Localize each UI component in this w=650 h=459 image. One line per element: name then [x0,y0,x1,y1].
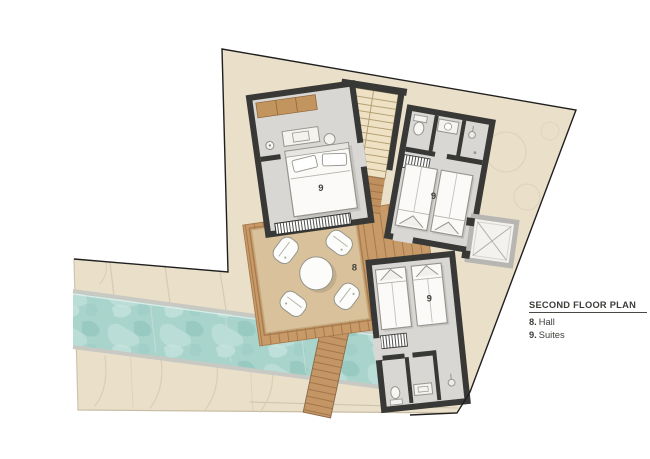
wall-stub [461,250,470,259]
legend-item-hall: 8.Hall [529,316,647,329]
toilet-tank [390,399,402,405]
lightwell [461,215,517,266]
wall-stub [466,217,475,226]
suite-top-left: 9 [249,83,374,236]
vanity [414,383,433,396]
suite-number-label: 9 [431,191,436,202]
hall-number-label: 8 [352,262,357,273]
legend-item-label: Suites [539,330,565,340]
legend-item-suites: 9.Suites [529,329,647,342]
suite-number-label: 9 [318,183,323,194]
floor-plan-canvas: 8 [0,0,650,459]
shower-head [468,131,476,139]
suite-number-label: 9 [427,293,432,304]
legend-title: SECOND FLOOR PLAN [529,300,647,313]
suite-bottom-right: 9 [365,254,468,410]
twin-bed [375,267,413,332]
floor-plan-drawing: 8 [0,0,650,459]
shower-head [448,379,455,386]
legend-item-number: 9. [529,330,537,340]
legend-item-number: 8. [529,317,537,327]
pillow [322,153,346,166]
double-bed [285,142,361,220]
legend: SECOND FLOOR PLAN 8.Hall 9.Suites [529,300,647,341]
legend-item-label: Hall [539,317,555,327]
